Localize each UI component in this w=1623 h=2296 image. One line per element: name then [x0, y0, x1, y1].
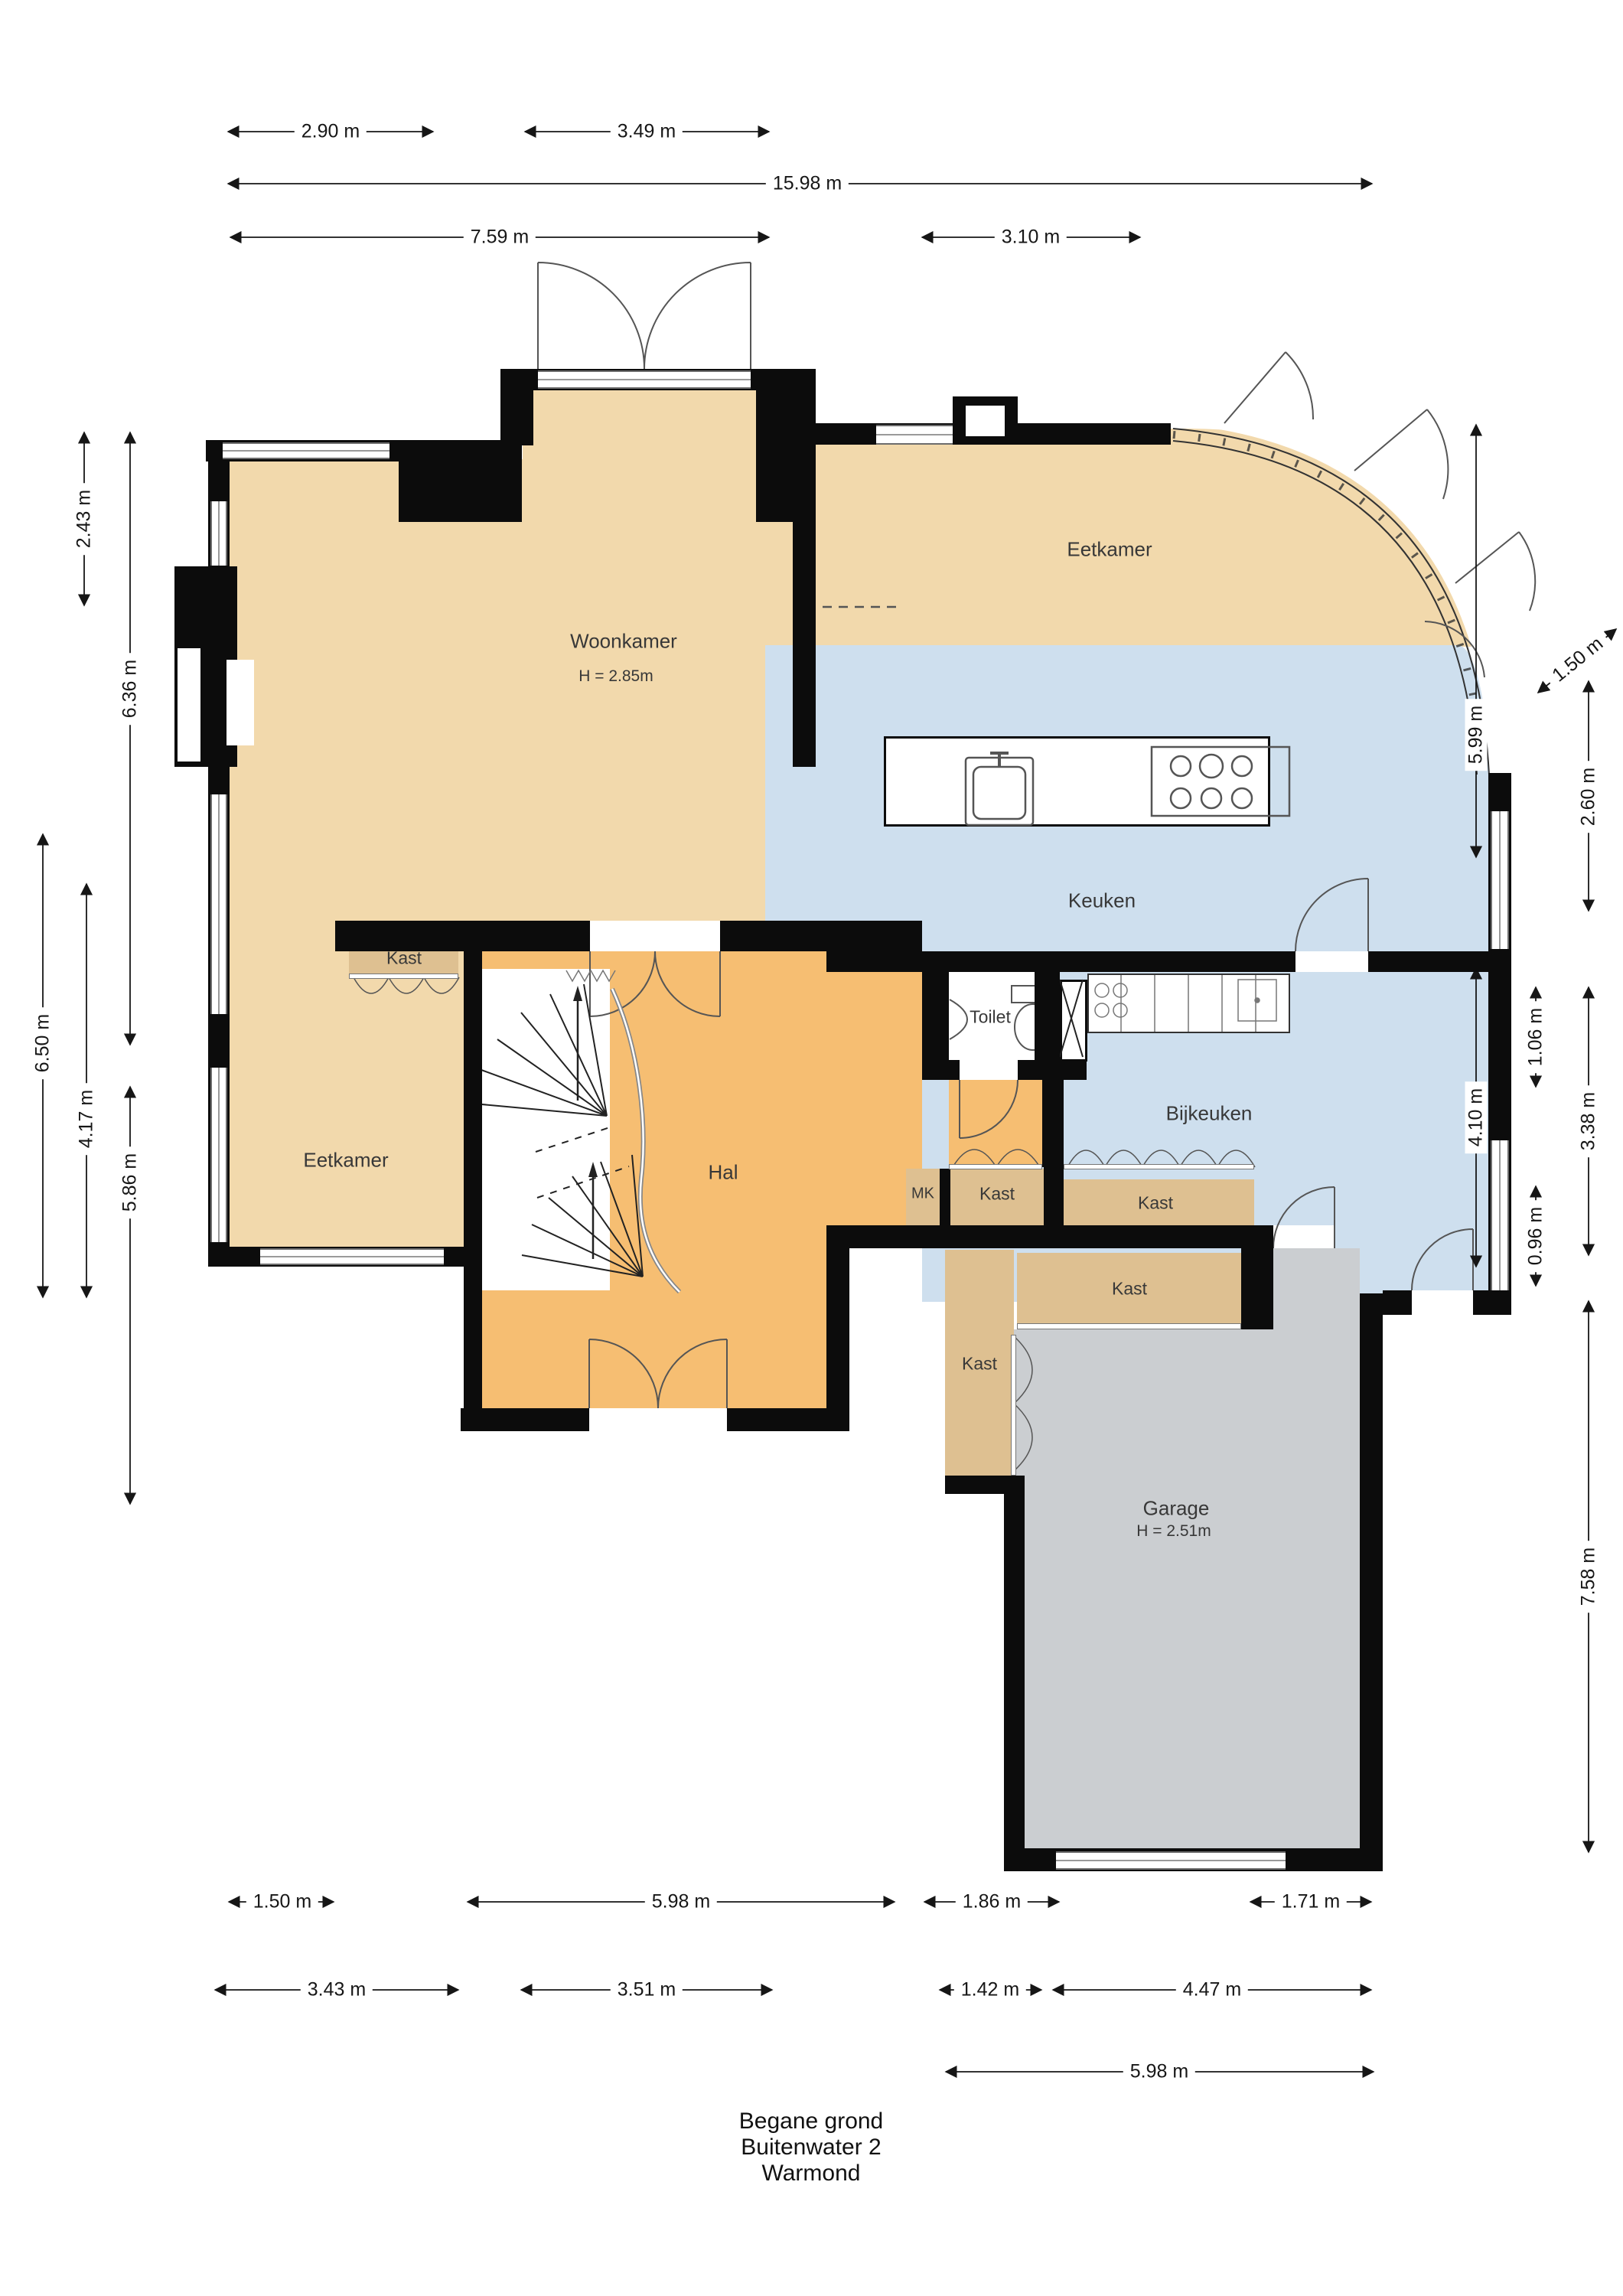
closet-tall-doors — [1011, 1335, 1016, 1476]
label-kast-3: Kast — [1112, 1279, 1147, 1300]
dim-left-243: 2.43 m — [73, 483, 96, 555]
fireplace-hearth — [227, 660, 254, 745]
dim-right-106: 1.06 m — [1525, 1001, 1547, 1073]
room-garage — [1014, 1248, 1360, 1848]
dim-bot-186: 1.86 m — [956, 1891, 1028, 1913]
dim-top-1598: 15.98 m — [766, 173, 849, 195]
stairs — [474, 970, 680, 1292]
wall-bump-right — [756, 369, 793, 522]
dim-top-290: 2.90 m — [295, 121, 367, 143]
dim-bot-447: 4.47 m — [1176, 1979, 1248, 2001]
dim-top-310: 3.10 m — [995, 227, 1067, 249]
wall-keuken-south — [826, 951, 1488, 972]
curve-outside-mask — [1171, 423, 1623, 777]
label-keuken: Keuken — [1068, 889, 1136, 913]
dim-left-650: 6.50 m — [32, 1007, 54, 1079]
dim-right-338: 3.38 m — [1578, 1085, 1600, 1157]
window-left-2 — [210, 794, 227, 1014]
door-toilet — [960, 1060, 1018, 1080]
island-sink — [966, 753, 1033, 825]
vent-box — [440, 465, 497, 505]
window-eetkamer-south — [260, 1248, 444, 1265]
door-woonkamer-hal — [590, 921, 720, 951]
nook-doors — [949, 1164, 1042, 1169]
flue-inner — [966, 406, 1005, 436]
plan-linework — [0, 0, 1623, 2296]
label-toilet: Toilet — [970, 1007, 1011, 1028]
closet-stairs-doors — [349, 974, 458, 979]
closet-wide-doors — [1064, 1164, 1254, 1169]
floor-plan: Woonkamer H = 2.85m Eetkamer Keuken Bijk… — [0, 0, 1623, 2296]
label-eetkamer-left: Eetkamer — [303, 1149, 388, 1172]
dim-bot-142: 1.42 m — [954, 1979, 1026, 2001]
wall-garage-west — [1004, 1476, 1025, 1871]
label-kast-stairs: Kast — [386, 948, 422, 969]
garage-door — [1056, 1851, 1286, 1870]
wall-bump-left — [500, 369, 533, 445]
wall-toilet-east — [1035, 972, 1060, 1065]
front-entrance-doors — [589, 1339, 727, 1408]
dim-right-096: 0.96 m — [1525, 1200, 1547, 1272]
label-bijkeuken: Bijkeuken — [1166, 1102, 1253, 1126]
dim-right-758: 7.58 m — [1578, 1541, 1600, 1613]
french-doors-hal — [590, 951, 720, 1016]
dim-left-586: 5.86 m — [119, 1146, 142, 1218]
label-eetkamer-top: Eetkamer — [1067, 538, 1152, 562]
dim-bot-171: 1.71 m — [1275, 1891, 1347, 1913]
window-right-2 — [1491, 1140, 1509, 1293]
chimney-flue — [178, 648, 200, 762]
dim-left-417: 4.17 m — [76, 1083, 98, 1155]
door-keuken — [1295, 951, 1368, 972]
dim-bot-351: 3.51 m — [611, 1979, 683, 2001]
wall-kasttall-south — [945, 1476, 1004, 1494]
dim-top-759: 7.59 m — [464, 227, 536, 249]
door-opening-top — [538, 370, 751, 389]
closet3-front — [1017, 1323, 1241, 1329]
french-doors-top — [538, 263, 751, 369]
window-top-left — [223, 442, 389, 459]
front-door-opening — [589, 1408, 727, 1431]
wall-kastrow-south — [826, 1225, 1273, 1248]
wall-kast3-east — [1241, 1248, 1273, 1329]
plan-title-city: Warmond — [762, 2161, 861, 2187]
label-garage-height: H = 2.51m — [1136, 1522, 1211, 1541]
wall-woonkamer-keuken — [793, 369, 816, 767]
label-hal: Hal — [708, 1161, 738, 1185]
label-garage: Garage — [1143, 1497, 1210, 1521]
wall-stairs-west — [464, 921, 482, 1431]
wall-hal-east-low — [826, 1248, 849, 1431]
dim-right-260: 2.60 m — [1578, 761, 1600, 833]
label-kast-wide: Kast — [1138, 1193, 1173, 1214]
wall-toilet-west — [922, 972, 949, 1060]
label-mk: MK — [911, 1186, 934, 1203]
dim-left-636: 6.36 m — [119, 653, 142, 725]
dim-right-410: 4.10 m — [1465, 1081, 1488, 1153]
dim-bot-150: 1.50 m — [246, 1891, 318, 1913]
label-woonkamer: Woonkamer — [570, 630, 677, 654]
wall-mk-divider — [940, 1169, 950, 1227]
wall-garage-east — [1360, 1293, 1383, 1871]
label-woonkamer-height: H = 2.85m — [578, 667, 653, 686]
plan-title-floor: Begane grond — [739, 2108, 884, 2135]
door-bijkeuken-east — [1412, 1290, 1473, 1315]
dim-bot-598b: 5.98 m — [1123, 2061, 1195, 2083]
dim-bot-598a: 5.98 m — [645, 1891, 717, 1913]
label-kast-tall: Kast — [962, 1354, 997, 1375]
dim-bot-343: 3.43 m — [301, 1979, 373, 2001]
dim-right-599: 5.99 m — [1465, 699, 1488, 771]
counter-details — [1095, 975, 1276, 1032]
window-top — [876, 425, 953, 445]
window-left-3 — [210, 1068, 227, 1242]
window-right-1 — [1491, 811, 1509, 949]
island-hob — [1152, 747, 1289, 816]
dim-top-349: 3.49 m — [611, 121, 683, 143]
window-left-1 — [210, 501, 227, 566]
label-kast-1: Kast — [979, 1184, 1015, 1205]
plan-title-address: Buitenwater 2 — [741, 2135, 881, 2161]
wall-nook-east — [1042, 1060, 1064, 1167]
